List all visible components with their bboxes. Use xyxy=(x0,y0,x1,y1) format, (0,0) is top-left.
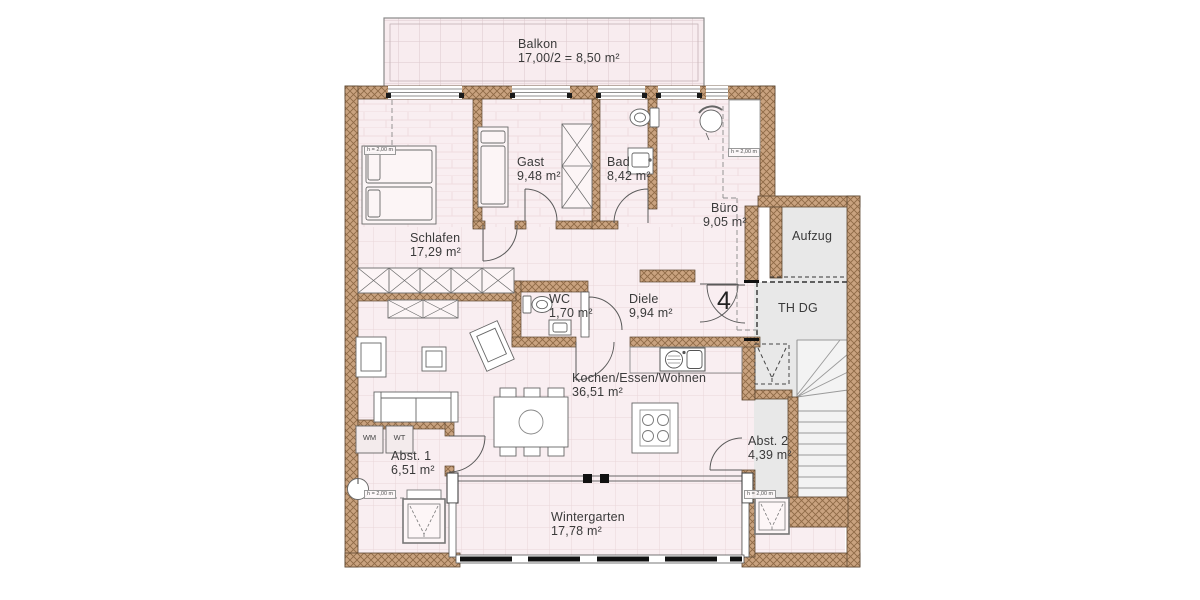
wintergarten-area: 17,78 m² xyxy=(551,524,625,538)
kochen-area: 36,51 m² xyxy=(572,385,706,399)
aufzug-name: Aufzug xyxy=(792,229,832,243)
room-label-kochen: Kochen/Essen/Wohnen 36,51 m² xyxy=(572,371,706,399)
abst2-area: 4,39 m² xyxy=(748,448,792,462)
floorplan-page: Balkon 17,00/2 = 8,50 m² Gast 9,48 m² Ba… xyxy=(0,0,1200,600)
buero-area: 9,05 m² xyxy=(703,215,747,229)
room-label-schlafen: Schlafen 17,29 m² xyxy=(410,231,461,259)
room-label-bad: Bad 8,42 m² xyxy=(607,155,651,183)
buero-name: Büro xyxy=(703,201,747,215)
wc-area: 1,70 m² xyxy=(549,306,593,320)
room-label-wc: WC 1,70 m² xyxy=(549,292,593,320)
dining-set xyxy=(494,388,568,456)
windows xyxy=(386,86,728,99)
schlafen-area: 17,29 m² xyxy=(410,245,461,259)
abst1-area: 6,51 m² xyxy=(391,463,435,477)
gast-name: Gast xyxy=(517,155,561,169)
wintergarten-name: Wintergarten xyxy=(551,510,625,524)
washer-label: WM xyxy=(356,433,383,442)
dryer-label: WT xyxy=(386,433,413,442)
unit-number-text: 4 xyxy=(717,287,731,315)
skylight-bottom-left xyxy=(403,490,445,543)
room-label-abst1: Abst. 1 6,51 m² xyxy=(391,449,435,477)
bad-name: Bad xyxy=(607,155,651,169)
unit-number: 4 xyxy=(717,287,731,316)
balkon-name: Balkon xyxy=(518,37,620,51)
height-note-abst2: h = 2,00 m xyxy=(744,490,776,499)
room-label-thdg: TH DG xyxy=(778,301,818,315)
abst1-name: Abst. 1 xyxy=(391,449,435,463)
thdg-name: TH DG xyxy=(778,301,818,315)
skylight-bottom-right xyxy=(755,498,789,534)
room-label-balkon: Balkon 17,00/2 = 8,50 m² xyxy=(518,37,620,65)
abst2-name: Abst. 2 xyxy=(748,434,792,448)
room-label-wintergarten: Wintergarten 17,78 m² xyxy=(551,510,625,538)
bad-area: 8,42 m² xyxy=(607,169,651,183)
balkon-area: 17,00/2 = 8,50 m² xyxy=(518,51,620,65)
room-label-diele: Diele 9,94 m² xyxy=(629,292,673,320)
height-note-schlafen: h = 2,00 m xyxy=(364,146,396,155)
diele-area: 9,94 m² xyxy=(629,306,673,320)
wc-name: WC xyxy=(549,292,593,306)
gast-area: 9,48 m² xyxy=(517,169,561,183)
room-label-abst2: Abst. 2 4,39 m² xyxy=(748,434,792,462)
room-label-gast: Gast 9,48 m² xyxy=(517,155,561,183)
kochen-name: Kochen/Essen/Wohnen xyxy=(572,371,706,385)
height-note-abst1: h = 2,00 m xyxy=(364,490,396,499)
room-label-buero: Büro 9,05 m² xyxy=(703,201,747,229)
room-label-aufzug: Aufzug xyxy=(792,229,832,243)
diele-name: Diele xyxy=(629,292,673,306)
height-note-buero: h = 2,00 m xyxy=(728,148,760,157)
schlafen-name: Schlafen xyxy=(410,231,461,245)
